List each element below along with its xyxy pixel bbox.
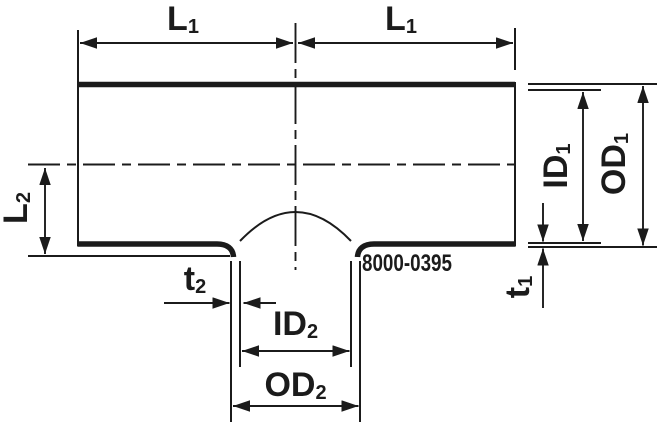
label-l1-left: L1 (167, 0, 199, 38)
label-t2: t2 (184, 260, 206, 298)
label-id1: ID1 (537, 143, 575, 188)
label-l2: L2 (0, 192, 35, 224)
dimension-lines (45, 43, 643, 406)
part-number: 8000-0395 (362, 250, 452, 277)
label-od1: OD1 (595, 133, 633, 195)
drawing-canvas: L1 L1 L2 ID1 OD1 t1 t2 ID2 OD2 8000-0395 (0, 0, 659, 425)
technical-drawing: L1 L1 L2 ID1 OD1 t1 t2 ID2 OD2 8000-0395 (0, 0, 659, 425)
label-od2: OD2 (264, 366, 326, 404)
label-t1: t1 (499, 276, 537, 298)
label-id2: ID2 (273, 305, 318, 343)
dimension-labels: L1 L1 L2 ID1 OD1 t1 t2 ID2 OD2 8000-0395 (0, 0, 633, 404)
pipe-outline (78, 85, 515, 258)
centerlines (28, 23, 522, 270)
label-l1-right: L1 (385, 0, 417, 38)
